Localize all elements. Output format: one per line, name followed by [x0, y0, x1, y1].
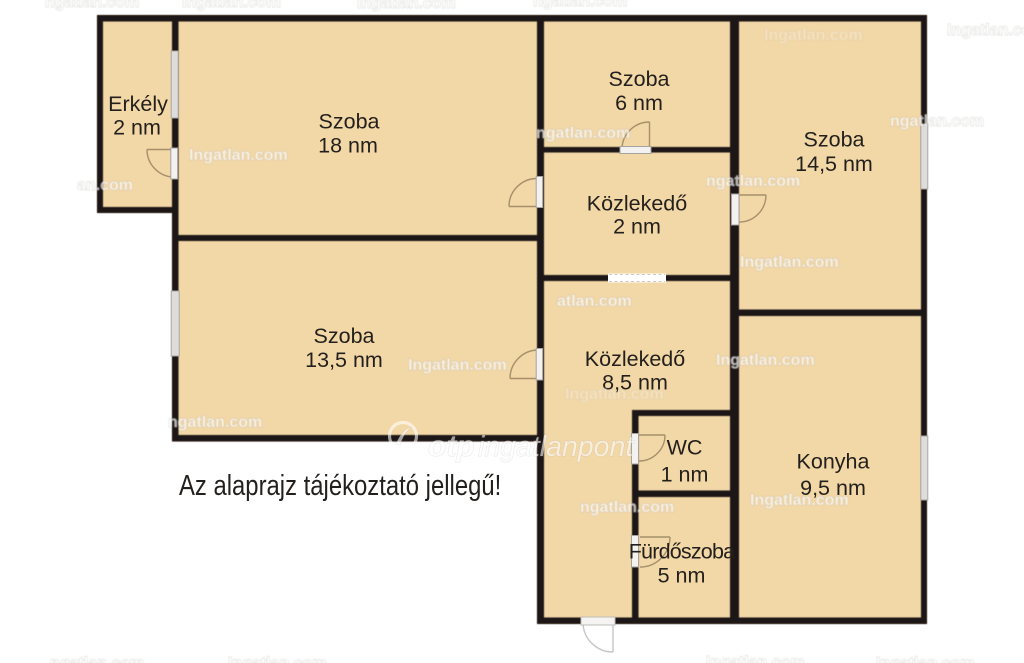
svg-text:ngatlan.com: ngatlan.com	[45, 0, 139, 11]
svg-text:Szoba: Szoba	[804, 127, 865, 151]
svg-text:5 nm: 5 nm	[658, 563, 706, 587]
svg-text:Szoba: Szoba	[314, 324, 375, 348]
svg-text:WC: WC	[667, 435, 703, 459]
svg-text:Konyha: Konyha	[797, 449, 870, 473]
svg-text:Erkély: Erkély	[108, 92, 168, 116]
svg-text:Közlekedő: Közlekedő	[587, 191, 687, 215]
svg-text:Ingatlan.com: Ingatlan.com	[716, 352, 815, 369]
svg-text:Ingatlan.com: Ingatlan.com	[706, 654, 805, 663]
svg-text:18 nm: 18 nm	[318, 133, 378, 157]
svg-text:ngatlan.com: ngatlan.com	[168, 414, 262, 431]
svg-text:Ingatlan.com: Ingatlan.com	[876, 655, 975, 663]
svg-text:Ingatlan.com: Ingatlan.com	[740, 254, 839, 271]
svg-text:ngatlan.com: ngatlan.com	[50, 655, 144, 663]
svg-text:Ingatlan.com: Ingatlan.com	[565, 386, 664, 403]
svg-text:Ingatlan.com: Ingatlan.com	[182, 0, 281, 11]
svg-text:Szoba: Szoba	[609, 67, 670, 91]
svg-text:1 nm: 1 nm	[661, 462, 709, 486]
svg-text:14,5 nm: 14,5 nm	[795, 152, 873, 176]
svg-text:2 nm: 2 nm	[613, 214, 661, 238]
svg-text:ingatlanpont: ingatlanpont	[478, 431, 634, 463]
svg-text:ngatlan.com: ngatlan.com	[533, 0, 627, 10]
svg-text:Szoba: Szoba	[319, 109, 380, 133]
svg-text:Ingatlan.com: Ingatlan.com	[228, 655, 327, 663]
svg-text:Ingatlan.com: Ingatlan.com	[764, 27, 863, 44]
svg-text:13,5 nm: 13,5 nm	[305, 348, 383, 372]
svg-text:atlan.com: atlan.com	[557, 293, 632, 310]
svg-text:Fürdőszoba: Fürdőszoba	[629, 539, 735, 563]
svg-text:Közlekedő: Közlekedő	[585, 347, 685, 371]
svg-text:ngatlan.com: ngatlan.com	[536, 125, 630, 142]
svg-text:2 nm: 2 nm	[113, 115, 161, 139]
svg-text:Ingatlan.com: Ingatlan.com	[189, 147, 288, 164]
svg-text:ngatlan.com: ngatlan.com	[706, 173, 800, 190]
svg-text:Ingatlan.com: Ingatlan.com	[750, 492, 849, 509]
svg-text:Ingatlan.com: Ingatlan.com	[357, 0, 456, 12]
svg-text:ngatlan.com: ngatlan.com	[890, 113, 984, 130]
svg-text:6 nm: 6 nm	[615, 91, 663, 115]
svg-text:Ingatlan.co: Ingatlan.co	[947, 22, 1024, 39]
svg-text:Az alaprajz tájékoztató jelleg: Az alaprajz tájékoztató jellegű!	[179, 469, 501, 502]
svg-text:ngatlan.com: ngatlan.com	[580, 499, 674, 516]
svg-text:otp: otp	[428, 430, 475, 463]
svg-text:Ingatlan.com: Ingatlan.com	[408, 357, 507, 374]
svg-text:an.com: an.com	[77, 177, 133, 194]
